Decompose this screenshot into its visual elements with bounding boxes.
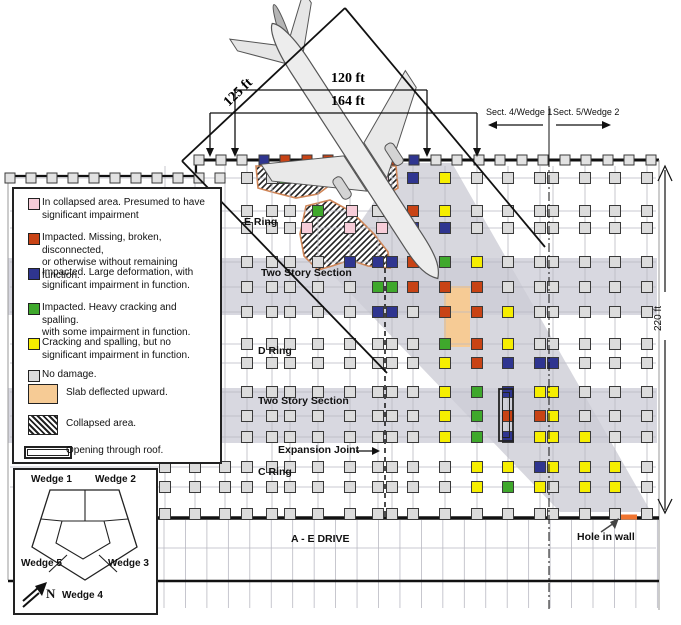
column-square bbox=[313, 462, 324, 473]
legend-item-text: Impacted. Large deformation, withsignifi… bbox=[42, 267, 214, 292]
facade-column-square bbox=[517, 155, 527, 165]
column-square bbox=[440, 509, 451, 520]
column-square bbox=[580, 358, 591, 369]
damage-square bbox=[387, 282, 398, 293]
damage-square bbox=[503, 462, 514, 473]
damage-square bbox=[440, 257, 451, 268]
dim-164ft-label: 164 ft bbox=[331, 94, 365, 110]
facade-column-square bbox=[216, 155, 226, 165]
north-label: N bbox=[46, 586, 55, 602]
column-square bbox=[190, 509, 201, 520]
hole-in-wall-label: Hole in wall bbox=[577, 531, 635, 543]
column-square bbox=[610, 387, 621, 398]
column-square bbox=[373, 411, 384, 422]
left-wall-column-square bbox=[173, 173, 183, 183]
column-square bbox=[535, 206, 546, 217]
column-square bbox=[373, 432, 384, 443]
left-wall-column-square bbox=[5, 173, 15, 183]
column-square bbox=[242, 358, 253, 369]
column-square bbox=[610, 411, 621, 422]
column-square bbox=[610, 206, 621, 217]
dim-120ft-label: 120 ft bbox=[331, 71, 365, 87]
column-square bbox=[345, 462, 356, 473]
column-square bbox=[610, 358, 621, 369]
legend-slab-label: Slab deflected upward. bbox=[66, 387, 216, 400]
damage-square bbox=[610, 462, 621, 473]
column-square bbox=[285, 223, 296, 234]
damage-square bbox=[387, 307, 398, 318]
damage-square bbox=[610, 482, 621, 493]
damage-square bbox=[580, 432, 591, 443]
column-square bbox=[285, 257, 296, 268]
wedge-1-label: Wedge 1 bbox=[31, 474, 72, 485]
column-square bbox=[373, 482, 384, 493]
column-square bbox=[242, 462, 253, 473]
column-square bbox=[408, 339, 419, 350]
left-wall-column-square bbox=[89, 173, 99, 183]
damage-square bbox=[440, 339, 451, 350]
damage-square bbox=[373, 307, 384, 318]
column-square bbox=[408, 432, 419, 443]
column-square bbox=[642, 482, 653, 493]
column-square bbox=[285, 206, 296, 217]
column-square bbox=[580, 173, 591, 184]
column-square bbox=[610, 282, 621, 293]
wedge-4-label: Wedge 4 bbox=[62, 590, 103, 601]
column-square bbox=[267, 282, 278, 293]
legend-line: Cracking and spalling, but no bbox=[42, 337, 214, 350]
facade-column-square bbox=[603, 155, 613, 165]
column-square bbox=[580, 339, 591, 350]
column-square bbox=[642, 223, 653, 234]
column-square bbox=[642, 358, 653, 369]
column-square bbox=[535, 339, 546, 350]
pentagon-inner-courtyard bbox=[56, 521, 110, 559]
legend-opening-swatch-icon bbox=[24, 446, 72, 459]
facade-column-square bbox=[431, 155, 441, 165]
damage-square bbox=[440, 432, 451, 443]
column-square bbox=[408, 358, 419, 369]
legend-swatch-icon bbox=[28, 268, 40, 280]
damage-square bbox=[535, 462, 546, 473]
column-square bbox=[242, 173, 253, 184]
column-square bbox=[242, 482, 253, 493]
column-square bbox=[160, 482, 171, 493]
damage-square bbox=[440, 307, 451, 318]
column-square bbox=[242, 282, 253, 293]
column-square bbox=[220, 509, 231, 520]
legend-item-text: Impacted. Heavy cracking and spalling.wi… bbox=[42, 302, 214, 340]
damage-square bbox=[472, 432, 483, 443]
column-square bbox=[313, 509, 324, 520]
damage-square bbox=[440, 387, 451, 398]
legend-swatch-icon bbox=[28, 233, 40, 245]
column-square bbox=[387, 482, 398, 493]
column-square bbox=[313, 358, 324, 369]
legend-line: Impacted. Heavy cracking and spalling. bbox=[42, 302, 214, 327]
wedge-2-label: Wedge 2 bbox=[95, 474, 136, 485]
column-square bbox=[387, 432, 398, 443]
legend-line: significant impairment in function. bbox=[42, 350, 214, 363]
column-square bbox=[408, 462, 419, 473]
facade-column-square bbox=[560, 155, 570, 165]
column-square bbox=[387, 509, 398, 520]
column-square bbox=[345, 432, 356, 443]
damage-square bbox=[440, 223, 451, 234]
sect5-label: Sect. 5/Wedge 2 bbox=[553, 107, 619, 117]
facade-column-square bbox=[581, 155, 591, 165]
column-square bbox=[373, 462, 384, 473]
damage-square bbox=[302, 223, 313, 234]
damage-square bbox=[472, 358, 483, 369]
column-square bbox=[503, 173, 514, 184]
column-square bbox=[242, 411, 253, 422]
column-square bbox=[642, 173, 653, 184]
legend-line: significant impairment in function. bbox=[42, 280, 214, 293]
column-square bbox=[313, 307, 324, 318]
damage-square bbox=[313, 206, 324, 217]
column-square bbox=[285, 358, 296, 369]
column-square bbox=[345, 482, 356, 493]
damage-square bbox=[472, 307, 483, 318]
column-square bbox=[503, 223, 514, 234]
column-square bbox=[408, 509, 419, 520]
legend-item-text: In collapsed area. Presumed to havesigni… bbox=[42, 197, 214, 222]
legend-slab-swatch-icon bbox=[28, 384, 58, 404]
column-square bbox=[267, 411, 278, 422]
column-square bbox=[242, 206, 253, 217]
facade-damage-square bbox=[409, 155, 419, 165]
column-square bbox=[408, 411, 419, 422]
legend-opening-label: Opening through roof. bbox=[66, 445, 216, 458]
left-wall-column-square bbox=[47, 173, 57, 183]
column-square bbox=[345, 339, 356, 350]
column-square bbox=[408, 482, 419, 493]
column-square bbox=[580, 257, 591, 268]
damage-square bbox=[440, 282, 451, 293]
column-square bbox=[220, 482, 231, 493]
column-square bbox=[373, 339, 384, 350]
column-square bbox=[580, 307, 591, 318]
column-square bbox=[313, 432, 324, 443]
damage-square bbox=[440, 206, 451, 217]
facade-column-square bbox=[452, 155, 462, 165]
damage-square bbox=[440, 173, 451, 184]
wedge-3-label: Wedge 3 bbox=[108, 558, 149, 569]
column-square bbox=[285, 282, 296, 293]
damage-square bbox=[373, 257, 384, 268]
damage-square bbox=[408, 173, 419, 184]
column-square bbox=[610, 509, 621, 520]
pentagon-plan bbox=[15, 470, 153, 610]
column-square bbox=[610, 339, 621, 350]
damage-square bbox=[535, 358, 546, 369]
two-story-section-label-upper: Two Story Section bbox=[261, 267, 352, 279]
column-square bbox=[472, 206, 483, 217]
column-square bbox=[642, 257, 653, 268]
damage-square bbox=[535, 411, 546, 422]
column-square bbox=[387, 339, 398, 350]
column-square bbox=[610, 173, 621, 184]
left-wall-column-square bbox=[215, 173, 225, 183]
damage-square bbox=[472, 462, 483, 473]
c-ring-label: C Ring bbox=[258, 466, 292, 478]
column-square bbox=[345, 358, 356, 369]
damage-square bbox=[440, 411, 451, 422]
north-arrow-icon bbox=[23, 587, 39, 607]
legend-line: Impacted. Large deformation, with bbox=[42, 267, 214, 280]
damage-square bbox=[387, 257, 398, 268]
column-square bbox=[387, 462, 398, 473]
column-square bbox=[472, 223, 483, 234]
dim-220ft-label: 220 ft bbox=[653, 306, 664, 331]
column-square bbox=[580, 509, 591, 520]
damage-square bbox=[373, 282, 384, 293]
column-square bbox=[642, 432, 653, 443]
dim-arrowhead-down bbox=[206, 148, 214, 157]
column-square bbox=[285, 509, 296, 520]
column-square bbox=[313, 482, 324, 493]
sect5-arrowhead bbox=[602, 121, 611, 129]
damage-square bbox=[580, 482, 591, 493]
column-square bbox=[580, 206, 591, 217]
column-square bbox=[503, 282, 514, 293]
d-ring-label: D Ring bbox=[258, 345, 292, 357]
column-square bbox=[313, 282, 324, 293]
damage-square bbox=[503, 358, 514, 369]
left-wall-column-square bbox=[110, 173, 120, 183]
column-square bbox=[267, 307, 278, 318]
damage-square bbox=[580, 462, 591, 473]
expansion-joint-arrowhead bbox=[372, 447, 380, 455]
column-square bbox=[580, 387, 591, 398]
damage-square bbox=[345, 257, 356, 268]
facade-column-square bbox=[538, 155, 548, 165]
column-square bbox=[535, 223, 546, 234]
wedge-inset: Wedge 1 Wedge 2 Wedge 5 Wedge 3 N Wedge … bbox=[13, 468, 158, 615]
column-square bbox=[313, 411, 324, 422]
column-square bbox=[313, 339, 324, 350]
column-square bbox=[642, 462, 653, 473]
column-square bbox=[610, 257, 621, 268]
damage-square bbox=[503, 411, 514, 422]
column-square bbox=[610, 223, 621, 234]
column-square bbox=[387, 387, 398, 398]
column-square bbox=[642, 339, 653, 350]
legend-line: No damage. bbox=[42, 369, 214, 382]
column-square bbox=[242, 432, 253, 443]
column-square bbox=[580, 223, 591, 234]
column-square bbox=[242, 307, 253, 318]
damage-square bbox=[535, 482, 546, 493]
legend-swatch-icon bbox=[28, 198, 40, 210]
ae-drive-label: A - E DRIVE bbox=[291, 533, 350, 545]
opening-swatch-inner bbox=[27, 449, 69, 456]
damage-square bbox=[440, 358, 451, 369]
damage-square bbox=[472, 387, 483, 398]
column-square bbox=[313, 257, 324, 268]
legend-line: In collapsed area. Presumed to have bbox=[42, 197, 214, 210]
column-square bbox=[503, 509, 514, 520]
legend-line: Impacted. Missing, broken, disconnected, bbox=[42, 232, 214, 257]
column-square bbox=[160, 509, 171, 520]
damage-square bbox=[503, 307, 514, 318]
pentagon-damage-diagram: E Ring D Ring C Ring Two Story Section T… bbox=[0, 0, 681, 625]
damage-square bbox=[472, 282, 483, 293]
column-square bbox=[642, 509, 653, 520]
expansion-joint-label: Expansion Joint bbox=[278, 444, 359, 456]
column-square bbox=[345, 282, 356, 293]
left-wall-column-square bbox=[68, 173, 78, 183]
left-wall-column-square bbox=[131, 173, 141, 183]
column-square bbox=[345, 411, 356, 422]
sect4-arrowhead bbox=[488, 121, 497, 129]
column-square bbox=[285, 307, 296, 318]
column-square bbox=[285, 432, 296, 443]
column-square bbox=[267, 358, 278, 369]
column-square bbox=[267, 509, 278, 520]
column-square bbox=[440, 482, 451, 493]
column-square bbox=[190, 482, 201, 493]
column-square bbox=[472, 173, 483, 184]
legend-swatch-icon bbox=[28, 338, 40, 350]
legend: In collapsed area. Presumed to havesigni… bbox=[12, 187, 222, 464]
column-square bbox=[408, 307, 419, 318]
e-ring-label: E Ring bbox=[244, 216, 277, 228]
column-square bbox=[387, 358, 398, 369]
column-square bbox=[642, 206, 653, 217]
dim-arrowhead-down bbox=[423, 148, 431, 157]
sect4-label: Sect. 4/Wedge 1 bbox=[486, 107, 552, 117]
damage-square bbox=[535, 387, 546, 398]
damage-square bbox=[503, 339, 514, 350]
legend-collapsed-swatch-icon bbox=[28, 415, 58, 435]
column-square bbox=[610, 307, 621, 318]
damage-square bbox=[503, 482, 514, 493]
column-square bbox=[642, 411, 653, 422]
column-square bbox=[535, 282, 546, 293]
left-wall-column-square bbox=[152, 173, 162, 183]
two-story-section-label-lower: Two Story Section bbox=[258, 395, 349, 407]
column-square bbox=[345, 307, 356, 318]
column-square bbox=[285, 482, 296, 493]
damage-square bbox=[472, 339, 483, 350]
legend-item-text: No damage. bbox=[42, 369, 214, 382]
column-square bbox=[580, 282, 591, 293]
column-square bbox=[242, 509, 253, 520]
hole-in-wall-marker bbox=[619, 515, 637, 520]
column-square bbox=[267, 432, 278, 443]
column-square bbox=[535, 257, 546, 268]
column-square bbox=[242, 339, 253, 350]
column-square bbox=[642, 307, 653, 318]
legend-collapsed-label: Collapsed area. bbox=[66, 418, 216, 431]
column-square bbox=[285, 411, 296, 422]
wedge-5-label: Wedge 5 bbox=[21, 558, 62, 569]
facade-column-square bbox=[495, 155, 505, 165]
facade-column-square bbox=[624, 155, 634, 165]
column-square bbox=[503, 257, 514, 268]
legend-line: significant impairment bbox=[42, 210, 214, 223]
column-square bbox=[642, 282, 653, 293]
facade-column-square bbox=[237, 155, 247, 165]
left-wall-column-square bbox=[26, 173, 36, 183]
column-square bbox=[242, 257, 253, 268]
column-square bbox=[267, 482, 278, 493]
column-square bbox=[535, 307, 546, 318]
column-square bbox=[535, 509, 546, 520]
facade-column-square bbox=[194, 155, 204, 165]
column-square bbox=[440, 462, 451, 473]
column-square bbox=[408, 387, 419, 398]
damage-square bbox=[535, 432, 546, 443]
damage-square bbox=[472, 411, 483, 422]
column-square bbox=[642, 387, 653, 398]
damage-square bbox=[408, 282, 419, 293]
legend-item-text: Cracking and spalling, but nosignificant… bbox=[42, 337, 214, 362]
damage-square bbox=[377, 223, 388, 234]
column-square bbox=[387, 411, 398, 422]
damage-square bbox=[347, 206, 358, 217]
column-square bbox=[472, 509, 483, 520]
column-square bbox=[373, 509, 384, 520]
facade-column-square bbox=[646, 155, 656, 165]
column-square bbox=[345, 509, 356, 520]
column-square bbox=[580, 411, 591, 422]
column-square bbox=[610, 432, 621, 443]
damage-square bbox=[472, 257, 483, 268]
legend-swatch-icon bbox=[28, 303, 40, 315]
column-square bbox=[267, 206, 278, 217]
damage-square bbox=[345, 223, 356, 234]
column-square bbox=[373, 387, 384, 398]
legend-swatch-icon bbox=[28, 370, 40, 382]
damage-square bbox=[472, 482, 483, 493]
column-square bbox=[242, 387, 253, 398]
column-square bbox=[535, 173, 546, 184]
